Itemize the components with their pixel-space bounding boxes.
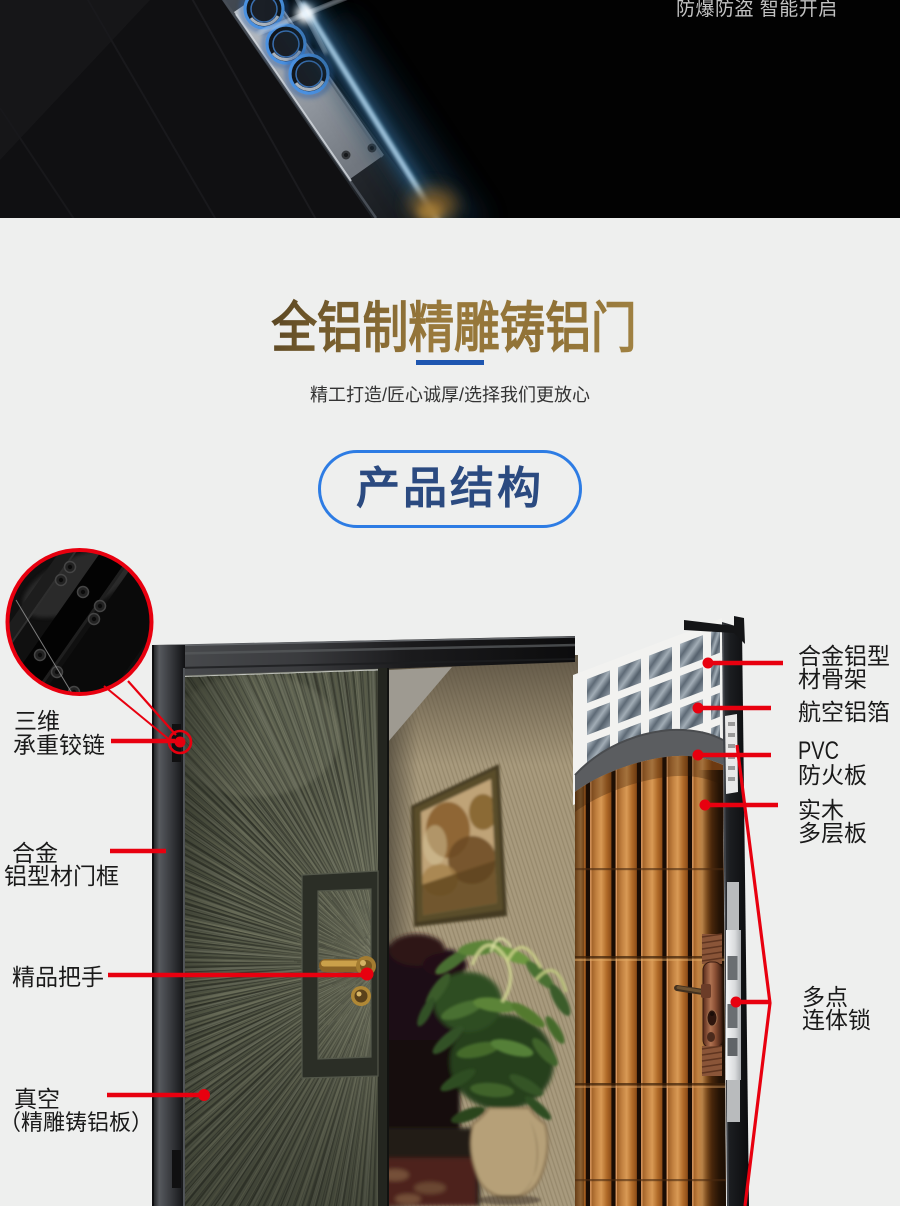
svg-text:三维: 三维 xyxy=(14,708,60,734)
svg-text:多层板: 多层板 xyxy=(798,820,867,846)
svg-text:（精雕铸铝板）: （精雕铸铝板） xyxy=(0,1110,153,1135)
svg-text:铝型材门框: 铝型材门框 xyxy=(4,863,119,889)
svg-text:防火板: 防火板 xyxy=(798,762,867,788)
svg-text:精品把手: 精品把手 xyxy=(12,964,104,990)
svg-text:承重铰链: 承重铰链 xyxy=(13,732,105,758)
svg-text:材骨架: 材骨架 xyxy=(798,666,867,692)
svg-text:航空铝箔: 航空铝箔 xyxy=(798,699,890,725)
svg-text:真空: 真空 xyxy=(14,1086,60,1112)
svg-text:PVC: PVC xyxy=(798,737,839,765)
svg-text:连体锁: 连体锁 xyxy=(802,1007,871,1033)
